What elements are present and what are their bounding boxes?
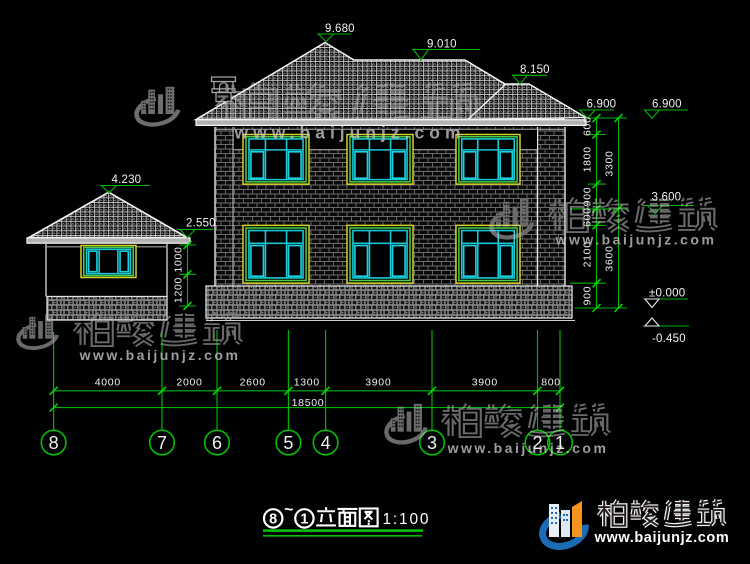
svg-text:2000: 2000 [176, 377, 202, 389]
svg-text:800: 800 [541, 377, 561, 389]
svg-text:600: 600 [582, 116, 594, 136]
svg-text:www.baijunjz.com: www.baijunjz.com [447, 440, 609, 456]
svg-text:6.900: 6.900 [652, 99, 682, 111]
svg-text:9.680: 9.680 [325, 23, 355, 35]
svg-text:8: 8 [49, 433, 59, 453]
svg-text:www.baijunjz.com: www.baijunjz.com [594, 530, 730, 546]
svg-text:~: ~ [284, 502, 293, 519]
svg-text:-0.450: -0.450 [652, 333, 686, 345]
svg-text:7: 7 [157, 433, 167, 453]
svg-text:6.900: 6.900 [587, 99, 617, 111]
svg-text:1000: 1000 [173, 246, 185, 272]
svg-text:3300: 3300 [604, 150, 616, 176]
svg-text:www.baijunjz.com: www.baijunjz.com [79, 347, 241, 363]
svg-text:3: 3 [427, 433, 437, 453]
svg-text:3900: 3900 [472, 377, 498, 389]
svg-text:3600: 3600 [604, 245, 616, 271]
svg-text:4: 4 [321, 433, 331, 453]
svg-text:www.baijunjz.com: www.baijunjz.com [233, 123, 465, 143]
svg-text:±0.000: ±0.000 [649, 288, 685, 300]
svg-text:1800: 1800 [582, 146, 594, 172]
svg-text:2.550: 2.550 [186, 218, 216, 230]
svg-text:4.230: 4.230 [112, 174, 142, 186]
svg-text:2600: 2600 [240, 377, 266, 389]
svg-text:3900: 3900 [365, 377, 391, 389]
svg-text:www.baijunjz.com: www.baijunjz.com [555, 232, 717, 248]
svg-text:1:100: 1:100 [383, 511, 431, 528]
svg-text:1: 1 [300, 512, 308, 528]
svg-text:5: 5 [283, 433, 293, 453]
svg-text:9.010: 9.010 [427, 39, 457, 51]
svg-text:4000: 4000 [95, 377, 121, 389]
svg-text:6: 6 [212, 433, 222, 453]
svg-text:1200: 1200 [173, 277, 185, 303]
svg-text:8: 8 [269, 512, 277, 528]
svg-text:8.150: 8.150 [520, 64, 550, 76]
svg-text:900: 900 [582, 286, 594, 306]
svg-text:18500: 18500 [292, 397, 325, 409]
svg-text:1300: 1300 [294, 377, 320, 389]
